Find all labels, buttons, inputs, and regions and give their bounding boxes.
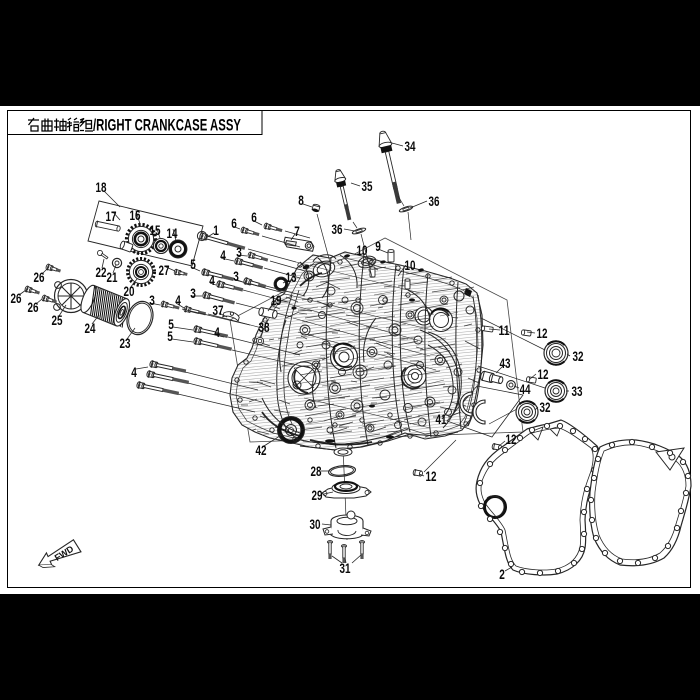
svg-text:20: 20	[124, 283, 135, 299]
svg-text:12: 12	[426, 468, 437, 484]
svg-text:38: 38	[259, 319, 270, 335]
svg-text:36: 36	[429, 193, 440, 209]
svg-text:35: 35	[362, 178, 373, 194]
svg-text:4: 4	[209, 272, 215, 288]
svg-text:31: 31	[340, 560, 351, 576]
svg-text:4: 4	[175, 292, 181, 308]
svg-text:28: 28	[311, 463, 322, 479]
svg-text:14: 14	[167, 225, 178, 241]
svg-text:9: 9	[375, 238, 381, 254]
svg-text:36: 36	[332, 221, 343, 237]
svg-text:6: 6	[231, 215, 237, 231]
svg-text:15: 15	[150, 222, 161, 238]
svg-text:22: 22	[96, 264, 107, 280]
svg-text:1: 1	[213, 222, 219, 238]
svg-text:7: 7	[294, 223, 300, 239]
svg-text:12: 12	[538, 366, 549, 382]
svg-text:44: 44	[520, 381, 531, 397]
svg-text:4: 4	[220, 247, 226, 263]
svg-text:42: 42	[256, 442, 267, 458]
svg-text:4: 4	[131, 364, 137, 380]
svg-text:33: 33	[572, 383, 583, 399]
svg-text:18: 18	[96, 179, 107, 195]
svg-text:3: 3	[233, 268, 239, 284]
svg-text:2: 2	[499, 566, 505, 582]
svg-text:13: 13	[286, 269, 297, 285]
svg-text:26: 26	[28, 299, 39, 315]
svg-text:/RIGHT CRANKCASE ASSY: /RIGHT CRANKCASE ASSY	[93, 116, 241, 135]
svg-text:10: 10	[405, 257, 416, 273]
svg-text:3: 3	[236, 244, 242, 260]
svg-text:4: 4	[214, 324, 220, 340]
svg-text:26: 26	[34, 269, 45, 285]
svg-text:29: 29	[312, 487, 323, 503]
svg-text:41: 41	[436, 411, 447, 427]
svg-text:37: 37	[213, 302, 224, 318]
svg-text:16: 16	[130, 207, 141, 223]
svg-text:19: 19	[271, 292, 282, 308]
svg-text:24: 24	[85, 320, 96, 336]
svg-text:3: 3	[190, 285, 196, 301]
svg-text:10: 10	[357, 242, 368, 258]
svg-text:11: 11	[499, 322, 510, 338]
svg-text:34: 34	[405, 138, 416, 154]
svg-text:17: 17	[106, 208, 117, 224]
svg-text:43: 43	[500, 355, 511, 371]
svg-text:5: 5	[190, 256, 196, 272]
svg-text:23: 23	[120, 335, 131, 351]
svg-text:26: 26	[11, 290, 22, 306]
svg-text:27: 27	[159, 262, 170, 278]
svg-text:12: 12	[537, 325, 548, 341]
svg-text:3: 3	[149, 292, 155, 308]
svg-text:5: 5	[167, 328, 173, 344]
svg-text:12: 12	[506, 431, 517, 447]
svg-text:32: 32	[573, 348, 584, 364]
svg-text:8: 8	[298, 192, 304, 208]
svg-text:6: 6	[251, 209, 257, 225]
svg-text:32: 32	[540, 399, 551, 415]
svg-text:21: 21	[107, 269, 118, 285]
svg-text:25: 25	[52, 312, 63, 328]
svg-text:30: 30	[310, 516, 321, 532]
